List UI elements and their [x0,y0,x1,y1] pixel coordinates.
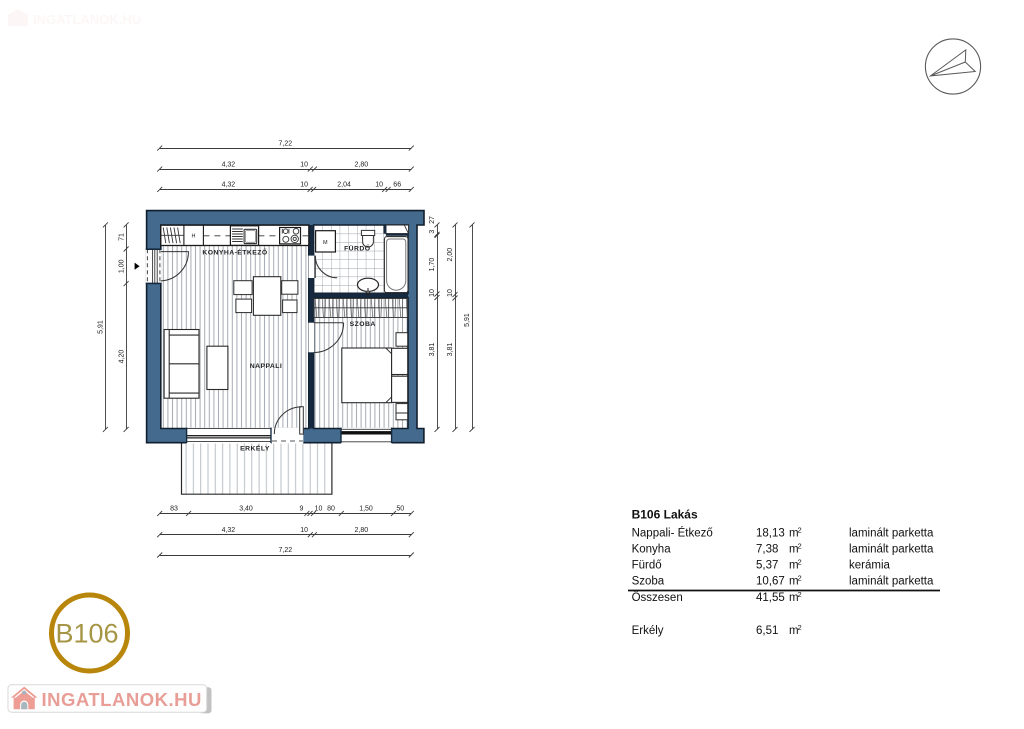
svg-text:Összesen: Összesen [632,592,683,604]
svg-text:41,55: 41,55 [756,592,785,604]
svg-text:Erkély: Erkély [632,625,664,637]
svg-text:18,13: 18,13 [756,528,785,540]
svg-text:KONYHA-ÉTKEZŐ: KONYHA-ÉTKEZŐ [202,247,267,256]
svg-text:2,80: 2,80 [354,161,368,168]
svg-text:50: 50 [396,506,404,513]
svg-text:4,32: 4,32 [222,182,236,189]
svg-text:10,67: 10,67 [756,576,785,588]
svg-text:7,22: 7,22 [278,140,292,147]
svg-text:Szoba: Szoba [632,576,665,588]
svg-text:kerámia: kerámia [849,560,891,572]
svg-text:NAPPALI: NAPPALI [250,363,282,370]
svg-text:Nappali- Étkező: Nappali- Étkező [632,527,713,540]
svg-text:9: 9 [300,506,304,513]
svg-text:B106 Lakás: B106 Lakás [632,508,698,522]
svg-text:2,04: 2,04 [337,182,351,189]
svg-text:ERKÉLY: ERKÉLY [240,443,270,452]
svg-text:10: 10 [315,506,323,513]
svg-text:2,00: 2,00 [447,248,454,262]
svg-text:1,70: 1,70 [429,258,436,272]
svg-text:7,38: 7,38 [756,544,778,556]
svg-text:10: 10 [429,289,436,297]
svg-text:83: 83 [170,506,178,513]
svg-text:3,81: 3,81 [447,343,454,357]
svg-text:2: 2 [798,542,802,551]
svg-text:80: 80 [327,506,335,513]
svg-text:2,80: 2,80 [354,527,368,534]
svg-text:66: 66 [393,182,401,189]
svg-text:10: 10 [300,527,308,534]
svg-text:4,20: 4,20 [118,350,125,364]
svg-text:2: 2 [798,526,802,535]
svg-text:Konyha: Konyha [632,544,672,556]
svg-text:INGATLANOK.HU: INGATLANOK.HU [33,12,141,27]
svg-text:4,32: 4,32 [222,527,236,534]
svg-text:INGATLANOK.HU: INGATLANOK.HU [42,689,202,710]
svg-text:10: 10 [447,289,454,297]
svg-text:27: 27 [429,216,436,224]
svg-text:SZOBA: SZOBA [350,321,376,328]
svg-text:10: 10 [300,161,308,168]
svg-text:M: M [323,240,328,246]
svg-text:3,40: 3,40 [239,506,253,513]
svg-text:3: 3 [429,230,436,234]
svg-text:2: 2 [798,574,802,583]
svg-text:2: 2 [798,558,802,567]
svg-text:laminált parketta: laminált parketta [849,576,934,588]
svg-text:3,81: 3,81 [429,343,436,357]
svg-text:1,50: 1,50 [359,506,373,513]
svg-text:71: 71 [118,233,125,241]
svg-text:10: 10 [375,182,383,189]
svg-text:5,37: 5,37 [756,560,778,572]
svg-text:5,91: 5,91 [464,313,471,327]
svg-text:2: 2 [798,623,802,632]
svg-text:4,32: 4,32 [222,161,236,168]
svg-text:B106: B106 [55,619,118,649]
svg-text:FÜRDŐ: FÜRDŐ [344,244,370,253]
svg-text:1,00: 1,00 [118,259,125,273]
svg-text:Fürdő: Fürdő [632,560,662,572]
svg-text:10: 10 [300,182,308,189]
svg-text:6,51: 6,51 [756,625,778,637]
svg-text:H: H [192,234,196,240]
svg-text:5,91: 5,91 [98,320,105,334]
svg-text:laminált parketta: laminált parketta [849,544,934,556]
svg-text:laminált parketta: laminált parketta [849,528,934,540]
svg-text:7,22: 7,22 [278,547,292,554]
